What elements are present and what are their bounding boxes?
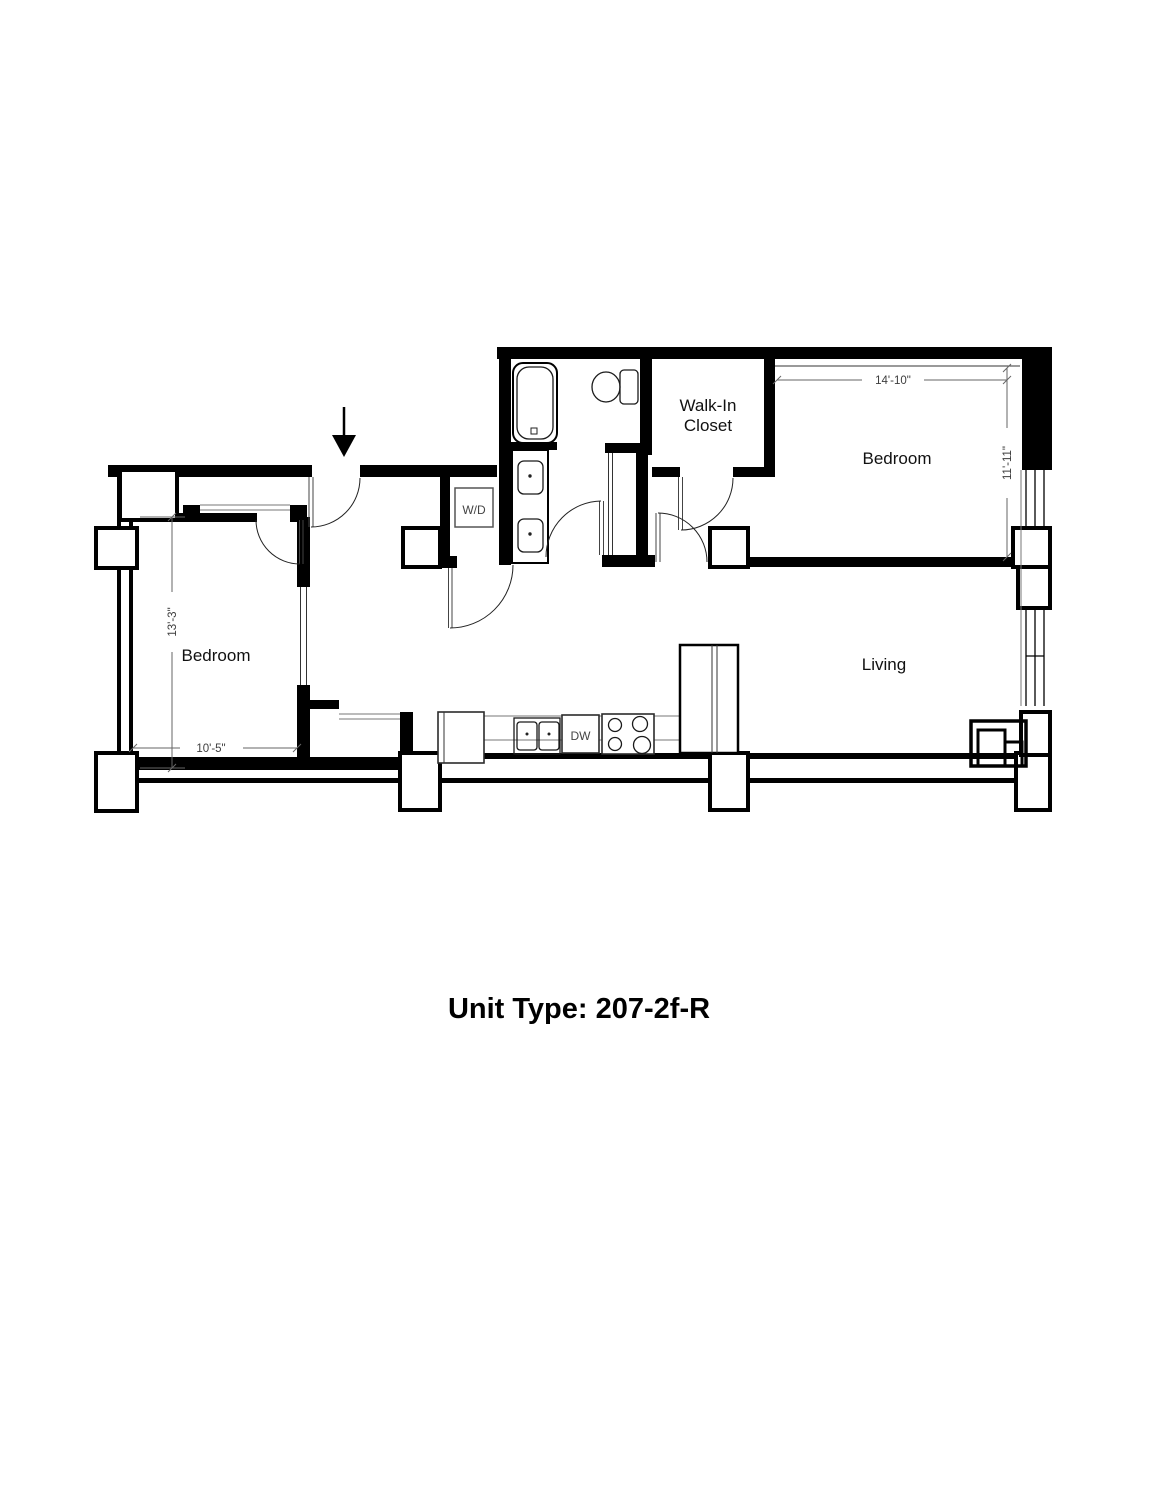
bathtub-icon [513,363,557,443]
dishwasher-label: DW [571,729,592,743]
bedroom-window [1026,470,1044,528]
kitchen-island [680,645,738,753]
bedroom-corner-chase [120,470,177,520]
dim-bedroom-right-width: 14'-10" [773,375,1011,387]
svg-text:13'-3": 13'-3" [167,607,179,636]
doors [256,477,733,628]
kitchen: DW [438,645,738,763]
bathroom-fixtures [512,363,638,563]
bedroom-left-door [256,520,303,564]
svg-text:10'-5": 10'-5" [196,743,225,755]
entry-door [309,477,360,527]
bedroom-left-label: Bedroom [182,646,251,665]
walk-in-closet-label-line1: Walk-In [680,396,737,415]
laundry-door [449,565,514,628]
windows [971,470,1050,766]
floor-plan-drawing: W/D DW [0,0,1159,1500]
dishwasher-icon: DW [562,715,599,753]
entry-arrow-icon [332,407,356,457]
unit-type-title: Unit Type: 207-2f-R [448,993,710,1025]
svg-text:11'-11": 11'-11" [1002,446,1014,480]
dimensions: 14'-10" 11'-11" 13'-3" 10'-5" [129,364,1014,772]
bathroom-door [546,501,604,557]
walk-in-closet-label-line2: Closet [684,416,732,435]
kitchen-sink-icon [514,718,560,754]
bedroom-right-door [656,513,707,562]
floor-plan-page: W/D DW [0,0,1159,1500]
living-window [1026,608,1044,706]
dim-bedroom-left-width: 10'-5" [129,743,301,755]
vanity-sinks-icon [512,450,548,563]
refrigerator-icon [438,712,484,763]
dim-bedroom-left-height: 13'-3" [140,513,185,772]
living-label: Living [862,655,906,674]
washer-dryer-label: W/D [462,503,486,517]
stove-icon [602,714,654,754]
bedroom-right-label: Bedroom [863,449,932,468]
laundry-closet: W/D [455,488,493,527]
toilet-icon [592,370,638,404]
svg-text:14'-10": 14'-10" [875,375,911,387]
